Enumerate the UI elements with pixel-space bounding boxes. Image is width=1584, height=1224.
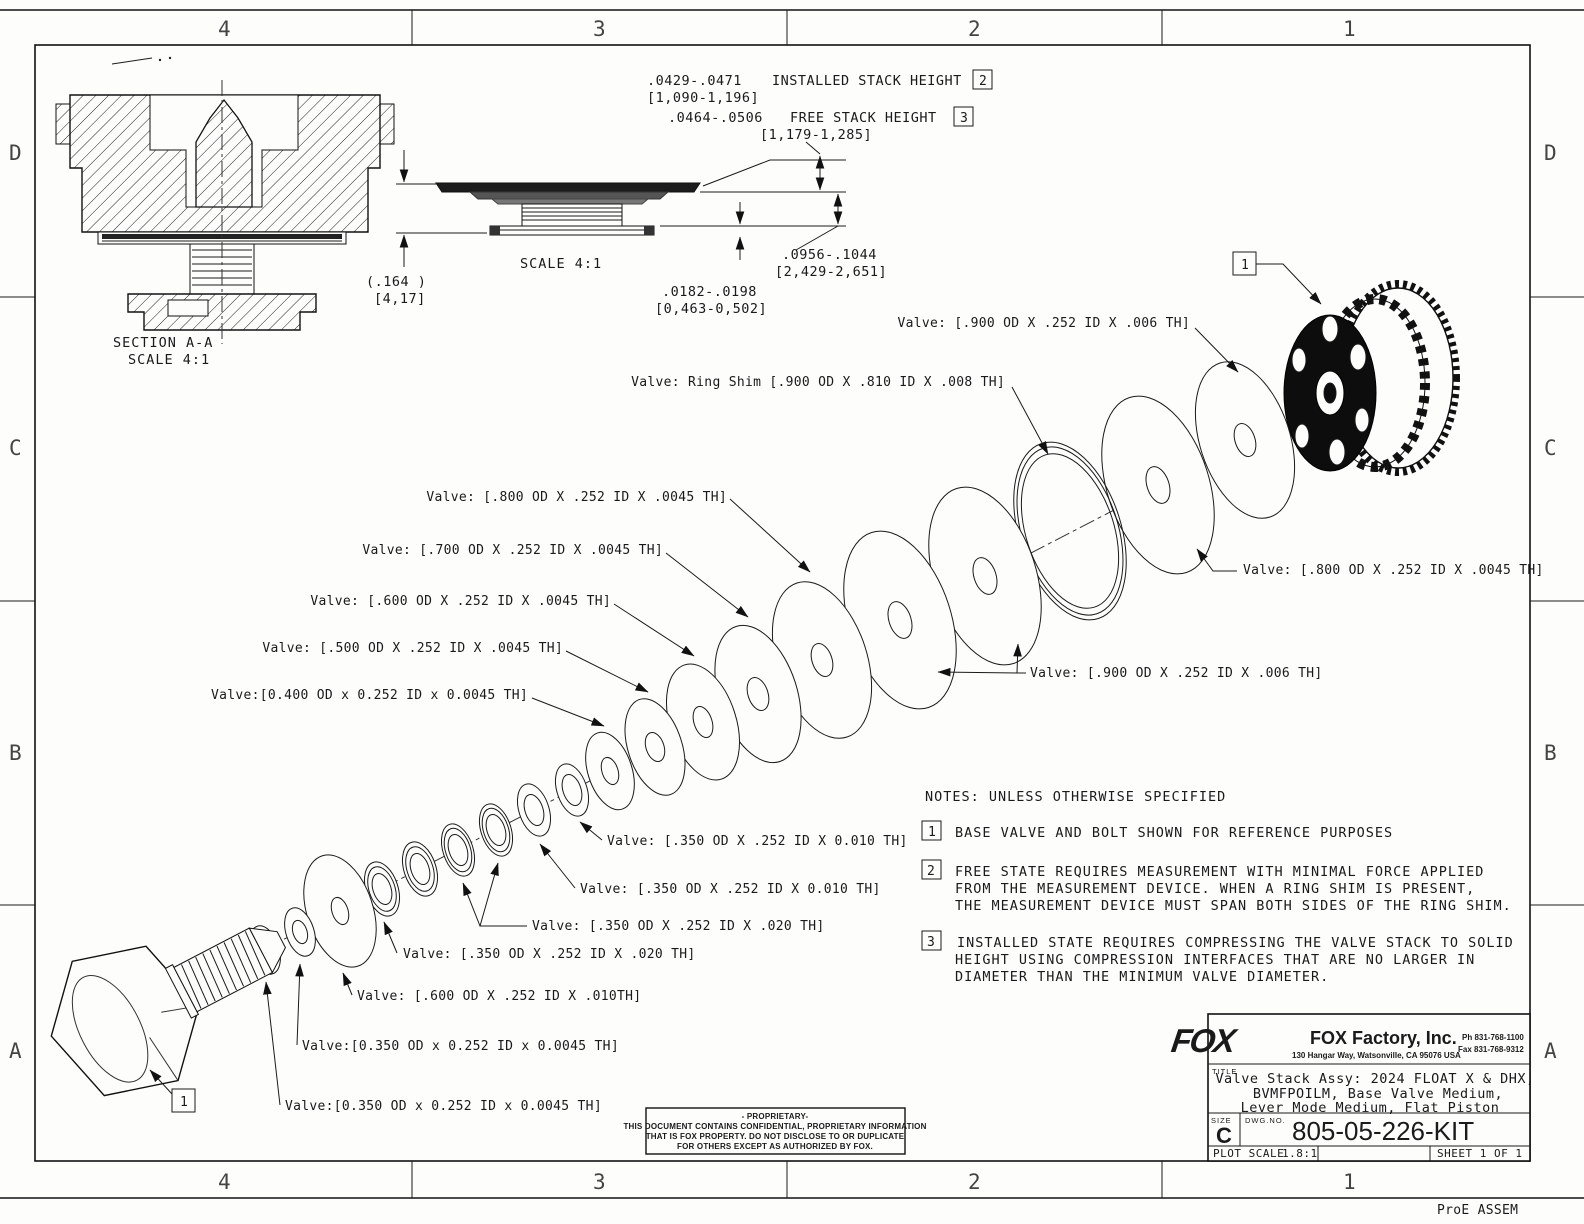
title-block: FOX FOX Factory, Inc. 130 Hangar Way, Wa… — [1169, 1014, 1535, 1161]
label-valve-400-left: Valve:[0.400 OD x 0.252 ID x 0.0045 TH] — [211, 688, 528, 703]
notes-header: NOTES: UNLESS OTHERWISE SPECIFIED — [925, 789, 1226, 805]
label-ring-shim: Valve: Ring Shim [.900 OD X .810 ID X .0… — [631, 375, 1005, 390]
note-1-text: BASE VALVE AND BOLT SHOWN FOR REFERENCE … — [955, 825, 1393, 841]
note-3-line-2: HEIGHT USING COMPRESSION INTERFACES THAT… — [955, 952, 1475, 968]
stack-side-view: SCALE 4:1 — [436, 183, 700, 272]
drawing-title-line-3: Lever Mode Medium, Flat Piston — [1241, 1100, 1500, 1116]
dim-free-label: FREE STACK HEIGHT — [790, 110, 937, 126]
zone-row-b-right: B — [1544, 741, 1557, 765]
zone-row-c-left: C — [9, 436, 22, 460]
label-valve-500-left: Valve: [.500 OD X .252 ID X .0045 TH] — [262, 641, 563, 656]
label-valve-350-010-a: Valve: [.350 OD X .252 ID X 0.010 TH] — [607, 834, 908, 849]
notes-block: NOTES: UNLESS OTHERWISE SPECIFIED 1 BASE… — [922, 789, 1514, 985]
cad-system-note: ProE ASSEM — [1437, 1203, 1518, 1218]
label-valve-900-top: Valve: [.900 OD X .252 ID X .006 TH] — [897, 316, 1190, 331]
proprietary-line-1: - PROPRIETARY- — [742, 1112, 809, 1121]
label-valve-800-left: Valve: [.800 OD X .252 ID X .0045 TH] — [426, 490, 727, 505]
plot-scale-value: 1.8:1 — [1282, 1147, 1318, 1160]
note-2-line-1: FREE STATE REQUIRES MEASUREMENT WITH MIN… — [955, 864, 1484, 880]
drawing-title-line-1: Valve Stack Assy: 2024 FLOAT X & DHX, — [1215, 1071, 1534, 1087]
proprietary-line-4: FOR OTHERS EXCEPT AS AUTHORIZED BY FOX. — [677, 1142, 873, 1151]
zone-col-4-bottom: 4 — [218, 1170, 231, 1194]
zone-row-a-right: A — [1544, 1039, 1557, 1063]
dim-installed-label: INSTALLED STACK HEIGHT — [772, 73, 962, 89]
dim-installed-in: .0429-.0471 — [647, 73, 742, 89]
note-3-line-1: INSTALLED STATE REQUIRES COMPRESSING THE… — [957, 935, 1514, 951]
flag-3: 3 — [960, 111, 968, 126]
plot-scale-label: PLOT SCALE — [1213, 1147, 1284, 1160]
zone-col-3-bottom: 3 — [593, 1170, 606, 1194]
zone-row-a-left: A — [9, 1039, 22, 1063]
drawing-canvas: 4 3 2 1 4 3 2 1 D C B A D C B A SECTION … — [0, 0, 1584, 1224]
zone-col-2-top: 2 — [968, 17, 981, 41]
label-valve-350-010-b: Valve: [.350 OD X .252 ID X 0.010 TH] — [580, 882, 881, 897]
dwg-no-label: DWG.NO. — [1245, 1116, 1286, 1125]
zone-col-2-bottom: 2 — [968, 1170, 981, 1194]
zone-row-c-right: C — [1544, 436, 1557, 460]
zone-col-1-top: 1 — [1343, 17, 1356, 41]
dimensions: (.164 ) [4,17] .0429-.0471 INSTALLED STA… — [366, 70, 992, 317]
size-value: C — [1216, 1123, 1232, 1148]
note-3-flag: 3 — [927, 935, 935, 950]
label-valve-600-left: Valve: [.600 OD X .252 ID X .0045 TH] — [310, 594, 611, 609]
drawing-sheet: 4 3 2 1 4 3 2 1 D C B A D C B A SECTION … — [0, 0, 1584, 1224]
exploded-view — [25, 284, 1456, 1123]
dim-plate-in: .0182-.0198 — [662, 284, 757, 300]
proprietary-line-2: THIS DOCUMENT CONTAINS CONFIDENTIAL, PRO… — [623, 1122, 926, 1131]
dim-total-mm: [2,429-2,651] — [775, 264, 887, 280]
dim-total-in: .0956-.1044 — [782, 247, 877, 263]
detail-scale: SCALE 4:1 — [520, 256, 602, 272]
label-valve-900-bottom: Valve: [.900 OD X .252 ID X .006 TH] — [1030, 666, 1323, 681]
note-1-flag: 1 — [928, 825, 936, 840]
company-address: 130 Hangar Way, Watsonville, CA 95076 US… — [1292, 1051, 1461, 1060]
dim-width-mm: [4,17] — [374, 291, 426, 307]
proprietary-line-3: THAT IS FOX PROPERTY. DO NOT DISCLOSE TO… — [646, 1132, 905, 1141]
section-title: SECTION A-A — [113, 335, 213, 351]
base-valve — [1284, 284, 1456, 472]
dim-free-mm: [1,179-1,285] — [760, 127, 872, 143]
dim-width-in: (.164 ) — [366, 274, 426, 290]
company-phone: Ph 831-768-1100 — [1462, 1033, 1524, 1042]
note-3-line-3: DIAMETER THAN THE MINIMUM VALVE DIAMETER… — [955, 969, 1329, 985]
company-name: FOX Factory, Inc. — [1310, 1028, 1457, 1048]
section-view: SECTION A-A SCALE 4:1 — [56, 57, 394, 368]
note-2-flag: 2 — [927, 864, 935, 879]
company-fax: Fax 831-768-9312 — [1458, 1045, 1524, 1054]
label-valve-350-020-a: Valve: [.350 OD X .252 ID X .020 TH] — [532, 919, 825, 934]
zone-row-d-right: D — [1544, 141, 1557, 165]
flag-1-bolt: 1 — [180, 1095, 188, 1110]
flag-1-base-valve: 1 — [1241, 258, 1249, 273]
flag-2: 2 — [979, 74, 987, 89]
zone-row-b-left: B — [9, 741, 22, 765]
sheet-info: SHEET 1 OF 1 — [1437, 1147, 1522, 1160]
label-valve-350-0045-b: Valve:[0.350 OD x 0.252 ID x 0.0045 TH] — [285, 1099, 602, 1114]
label-valve-700-left: Valve: [.700 OD X .252 ID X .0045 TH] — [362, 543, 663, 558]
bolt — [25, 871, 317, 1123]
zone-col-1-bottom: 1 — [1343, 1170, 1356, 1194]
label-valve-600-010: Valve: [.600 OD X .252 ID X .010TH] — [357, 989, 641, 1004]
fox-logo: FOX — [1169, 1023, 1240, 1060]
dwg-no-value: 805-05-226-KIT — [1292, 1116, 1474, 1146]
zone-row-d-left: D — [9, 141, 22, 165]
label-valve-350-020-b: Valve: [.350 OD X .252 ID X .020 TH] — [403, 947, 696, 962]
dim-installed-mm: [1,090-1,196] — [647, 90, 759, 106]
label-valve-350-0045-a: Valve:[0.350 OD x 0.252 ID x 0.0045 TH] — [302, 1039, 619, 1054]
label-valve-800-right: Valve: [.800 OD X .252 ID X .0045 TH] — [1243, 563, 1544, 578]
dim-plate-mm: [0,463-0,502] — [655, 301, 767, 317]
note-2-line-3: THE MEASUREMENT DEVICE MUST SPAN BOTH SI… — [955, 898, 1512, 914]
proprietary-box: - PROPRIETARY- THIS DOCUMENT CONTAINS CO… — [623, 1108, 926, 1154]
zone-col-3-top: 3 — [593, 17, 606, 41]
zone-col-4-top: 4 — [218, 17, 231, 41]
note-2-line-2: FROM THE MEASUREMENT DEVICE. WHEN A RING… — [955, 881, 1475, 897]
section-scale: SCALE 4:1 — [128, 352, 210, 368]
dim-free-in: .0464-.0506 — [668, 110, 763, 126]
